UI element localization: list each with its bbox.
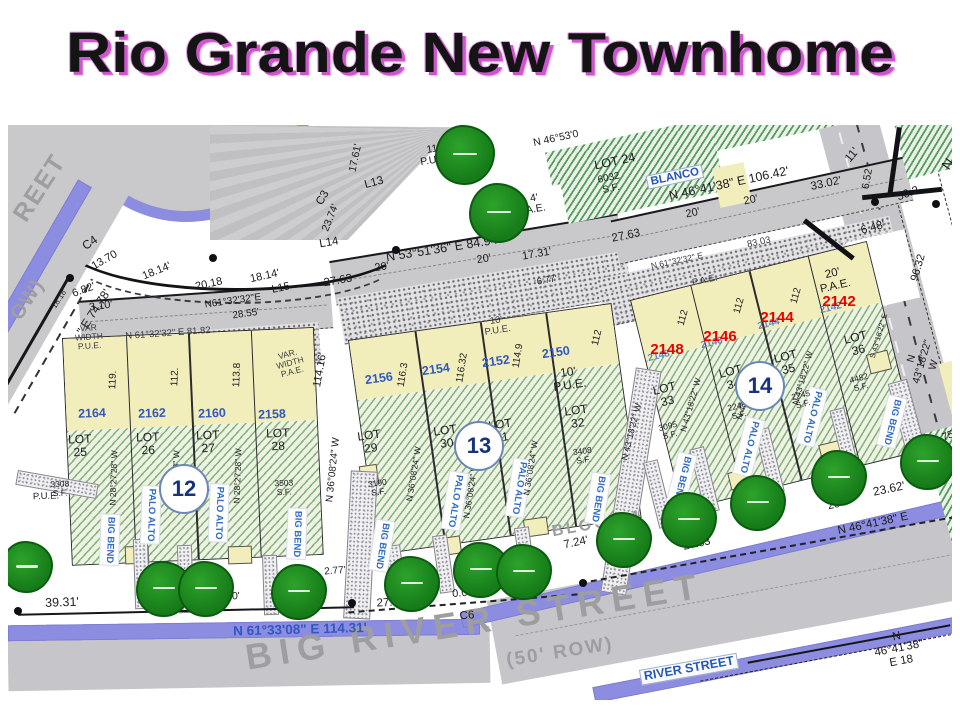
tree-icon bbox=[8, 541, 53, 593]
dimension-label: 2.77' bbox=[324, 566, 346, 579]
annotation-2142: 2142 bbox=[822, 294, 855, 310]
address-2162: 2162 bbox=[138, 407, 166, 421]
dimension-label: 10' P.U.E. bbox=[551, 364, 587, 395]
dimension-label: 3190 S.F. bbox=[367, 478, 388, 499]
street-name-palo-alto: PALO ALTO bbox=[141, 486, 160, 544]
easement-label: 10' P.U.E. bbox=[482, 314, 511, 338]
lot-26: LOT 26 bbox=[136, 431, 160, 458]
tree-icon bbox=[811, 450, 867, 506]
survey-point bbox=[932, 200, 940, 208]
dimension-label: N 28°27'28" W bbox=[108, 450, 119, 506]
slide: { "title": "Rio Grande New Townhome", "c… bbox=[0, 0, 960, 720]
dimension-label: 20' bbox=[374, 261, 390, 275]
lot-29: LOT 29 bbox=[357, 428, 384, 457]
survey-point bbox=[209, 254, 217, 262]
plat-map: REETOW)" E 74.78'18.18'C413.7018.14'20.1… bbox=[8, 125, 952, 700]
tree-icon bbox=[435, 125, 495, 185]
street-name-big-bend: BIG BEND bbox=[287, 508, 306, 559]
annotation-2148: 2148 bbox=[650, 342, 683, 358]
dimension-label: 23.62' bbox=[872, 479, 906, 498]
annotation-2146: 2146 bbox=[703, 329, 736, 345]
lot-28: LOT 28 bbox=[266, 427, 290, 454]
tree-icon bbox=[384, 556, 440, 612]
block-number-13: 13 bbox=[454, 421, 504, 471]
porch-notch bbox=[228, 546, 253, 565]
tree-icon bbox=[271, 564, 327, 620]
annotation-2144: 2144 bbox=[760, 310, 793, 326]
page-title: Rio Grande New Townhome bbox=[0, 20, 960, 86]
dimension-label: 39.31' bbox=[45, 596, 79, 611]
survey-point bbox=[66, 274, 74, 282]
survey-point bbox=[348, 599, 356, 607]
dimension-label: P.U.E. bbox=[33, 491, 60, 502]
lot-25: LOT 25 bbox=[68, 433, 92, 460]
address-2164: 2164 bbox=[78, 407, 106, 421]
dimension-label: C6 bbox=[459, 609, 475, 623]
dimension-label: 113.8 bbox=[232, 363, 244, 388]
tree-icon bbox=[596, 512, 652, 568]
easement-label: VAR WIDTH P.U.E. bbox=[74, 323, 104, 352]
dimension-label: 3503 S.F. bbox=[274, 479, 294, 498]
dimension-label: N 36°08'24" W bbox=[325, 437, 343, 503]
dimension-label: 20' bbox=[476, 253, 492, 267]
street-name-big-bend: BIG BEND bbox=[100, 514, 119, 565]
dimension-label: 119. bbox=[108, 370, 119, 389]
address-2160: 2160 bbox=[198, 407, 226, 421]
lot-27: LOT 27 bbox=[196, 429, 220, 456]
lot-32: LOT 32 bbox=[564, 403, 591, 432]
block-number-12: 12 bbox=[159, 464, 209, 514]
dimension-label: N 28°27'28" W bbox=[232, 448, 243, 504]
tree-icon bbox=[730, 475, 786, 531]
block-number-14: 14 bbox=[735, 361, 785, 411]
survey-point bbox=[871, 198, 879, 206]
dimension-label: 112. bbox=[170, 367, 181, 386]
tree-icon bbox=[900, 434, 952, 490]
street-name-palo-alto: PALO ALTO bbox=[209, 484, 228, 542]
survey-point bbox=[14, 607, 22, 615]
address-2158: 2158 bbox=[258, 408, 286, 422]
dimension-label: 3408 S.F. bbox=[572, 446, 593, 467]
